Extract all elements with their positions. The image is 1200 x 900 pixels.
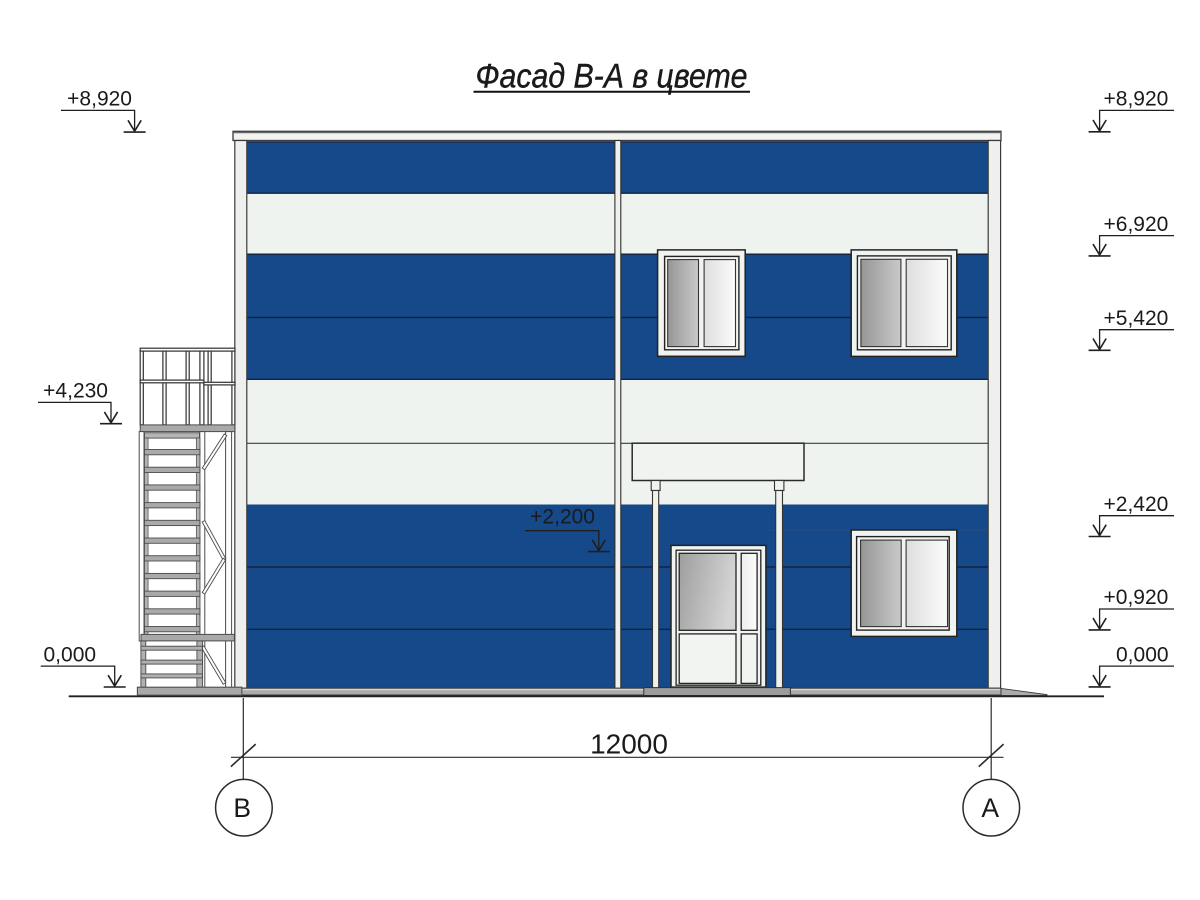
svg-text:+2,200: +2,200 [530, 506, 595, 529]
svg-text:0,000: 0,000 [44, 643, 97, 666]
svg-text:+2,420: +2,420 [1104, 493, 1169, 516]
svg-text:Фасад В-А в цвете: Фасад В-А в цвете [476, 58, 748, 96]
svg-text:+0,920: +0,920 [1104, 586, 1169, 609]
svg-text:+4,230: +4,230 [43, 380, 108, 403]
svg-text:0,000: 0,000 [1116, 643, 1169, 666]
svg-text:12000: 12000 [590, 729, 668, 760]
svg-text:+8,920: +8,920 [67, 88, 132, 111]
svg-text:А: А [981, 793, 999, 823]
svg-text:+8,920: +8,920 [1104, 88, 1169, 111]
svg-text:+5,420: +5,420 [1104, 307, 1169, 330]
svg-text:+6,920: +6,920 [1104, 213, 1169, 236]
svg-text:В: В [233, 793, 251, 823]
